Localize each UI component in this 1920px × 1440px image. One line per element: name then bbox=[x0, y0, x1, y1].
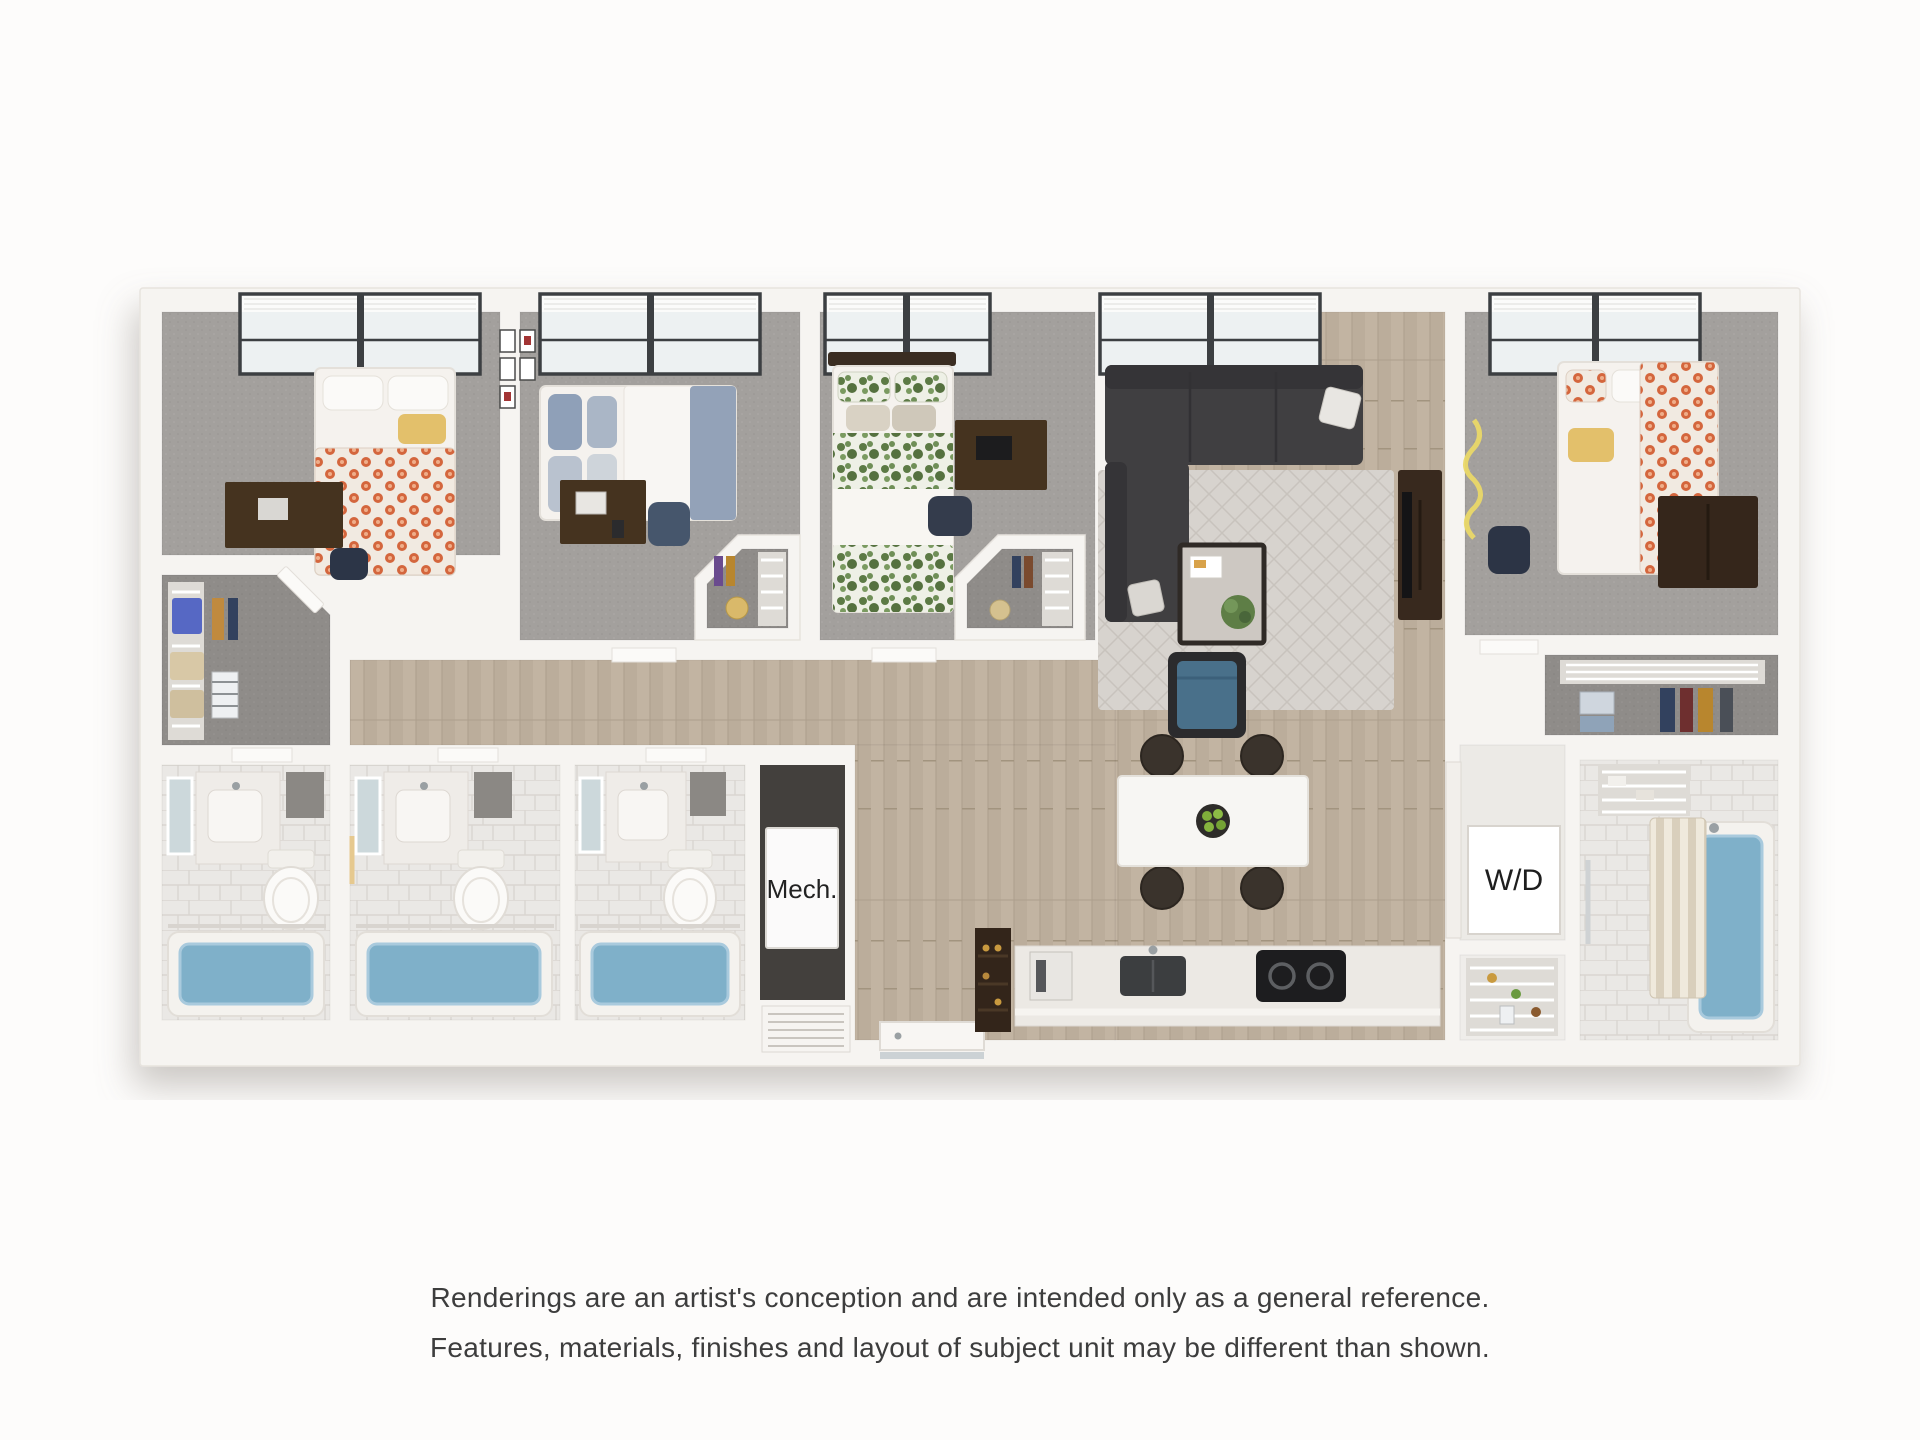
dining-stool bbox=[1241, 735, 1283, 777]
basket bbox=[990, 600, 1010, 620]
fruit-bowl bbox=[1196, 804, 1230, 838]
bed-3 bbox=[828, 352, 956, 612]
hanging-clothes bbox=[212, 598, 224, 640]
pantry-jar bbox=[1531, 1007, 1541, 1017]
page: Mech. bbox=[0, 0, 1920, 1440]
wine-shelf bbox=[975, 928, 1011, 1032]
faucet bbox=[640, 782, 648, 790]
laundry-door bbox=[1446, 762, 1461, 938]
hanging-clothes bbox=[1698, 688, 1713, 732]
hanging-clothes bbox=[228, 598, 238, 640]
desk-chair-4 bbox=[1488, 526, 1530, 574]
disclaimer-line-1: Renderings are an artist's conception an… bbox=[0, 1282, 1920, 1314]
desk-chair-1 bbox=[330, 548, 368, 580]
tv-console bbox=[1398, 470, 1442, 620]
floor-plan-image: Mech. bbox=[0, 0, 1920, 1100]
sink-basin bbox=[618, 790, 668, 840]
bathroom-3-door bbox=[646, 748, 706, 762]
desk-2-phone bbox=[612, 520, 624, 538]
pantry bbox=[1466, 958, 1558, 1036]
desk-3-monitor bbox=[976, 436, 1012, 460]
entry bbox=[880, 1022, 984, 1059]
folded-towels bbox=[1636, 790, 1654, 800]
shower-curtain bbox=[1650, 818, 1706, 998]
cooktop bbox=[1256, 950, 1346, 1002]
bathtub-2 bbox=[356, 932, 552, 1016]
basket bbox=[170, 690, 204, 718]
washer-dryer-label: W/D bbox=[1485, 864, 1543, 897]
desk-2-laptop bbox=[576, 492, 606, 514]
dining-stool bbox=[1141, 735, 1183, 777]
side-cabinet bbox=[286, 772, 324, 818]
desk-chair-2 bbox=[648, 502, 690, 546]
hallway-floor bbox=[350, 660, 1115, 745]
window-bedroom-2 bbox=[540, 294, 760, 374]
side-cabinet bbox=[690, 772, 726, 816]
pantry-jar bbox=[1487, 973, 1497, 983]
bedroom-2-door bbox=[612, 648, 676, 662]
sink-basin bbox=[208, 790, 262, 842]
toilet-2 bbox=[454, 850, 508, 929]
sink-basin bbox=[396, 790, 450, 842]
blue-throw-blanket bbox=[690, 386, 736, 520]
lighted-mirror bbox=[580, 778, 602, 852]
bathtub-1 bbox=[168, 932, 324, 1016]
green-duvet bbox=[833, 545, 953, 612]
dining-stool bbox=[1241, 867, 1283, 909]
folded-clothes bbox=[1580, 692, 1614, 714]
bathroom-1-door bbox=[232, 748, 292, 762]
hanging-clothes bbox=[1660, 688, 1675, 732]
pantry-jar bbox=[1511, 989, 1521, 999]
lighted-mirror bbox=[356, 778, 380, 854]
lighted-mirror bbox=[168, 778, 192, 854]
coffee-table bbox=[1180, 545, 1264, 643]
bathtub-3 bbox=[580, 932, 740, 1016]
bedroom-4-door bbox=[1480, 640, 1538, 654]
mechanical-label: Mech. bbox=[767, 874, 838, 904]
faucet bbox=[420, 782, 428, 790]
hanging-clothes bbox=[726, 556, 735, 586]
bedroom-3-door bbox=[872, 648, 936, 662]
bathroom-2-door bbox=[438, 748, 498, 762]
accent-chair bbox=[1168, 652, 1246, 738]
hanging-clothes bbox=[1012, 556, 1021, 588]
side-cabinet bbox=[474, 772, 512, 818]
pantry-box bbox=[1500, 1006, 1514, 1024]
window-living-room bbox=[1100, 294, 1320, 374]
toilet-1 bbox=[264, 850, 318, 929]
door-handle bbox=[895, 1033, 902, 1040]
hat-box bbox=[726, 597, 748, 619]
desk-chair-3 bbox=[928, 496, 972, 536]
shower-head bbox=[1709, 823, 1719, 833]
folded-towels bbox=[1608, 776, 1626, 786]
storage-bin bbox=[172, 598, 202, 634]
toilet-3 bbox=[664, 850, 716, 928]
folded-clothes bbox=[1580, 716, 1614, 732]
disclaimer-line-2: Features, materials, finishes and layout… bbox=[0, 1332, 1920, 1364]
dining-stool bbox=[1141, 867, 1183, 909]
mechanical-closet: Mech. bbox=[762, 828, 850, 1052]
potted-plant bbox=[1221, 595, 1255, 629]
hanging-clothes bbox=[1024, 556, 1033, 588]
basket bbox=[170, 652, 204, 680]
window-bedroom-1 bbox=[240, 294, 480, 374]
yellow-pillow bbox=[1568, 428, 1614, 462]
door-threshold bbox=[880, 1052, 984, 1059]
floor-plan-svg: Mech. bbox=[0, 0, 1920, 1100]
yellow-pillow bbox=[398, 414, 446, 444]
faucet bbox=[232, 782, 240, 790]
green-duvet bbox=[833, 433, 953, 489]
faucet bbox=[1149, 946, 1158, 955]
hanging-clothes bbox=[1680, 688, 1693, 732]
desk-1-laptop bbox=[258, 498, 288, 520]
disclaimer: Renderings are an artist's conception an… bbox=[0, 1282, 1920, 1382]
hanging-clothes bbox=[714, 556, 723, 586]
headboard bbox=[828, 352, 956, 366]
hanging-clothes bbox=[1720, 688, 1733, 732]
television bbox=[1402, 492, 1412, 598]
throw-pillow bbox=[1127, 579, 1165, 617]
